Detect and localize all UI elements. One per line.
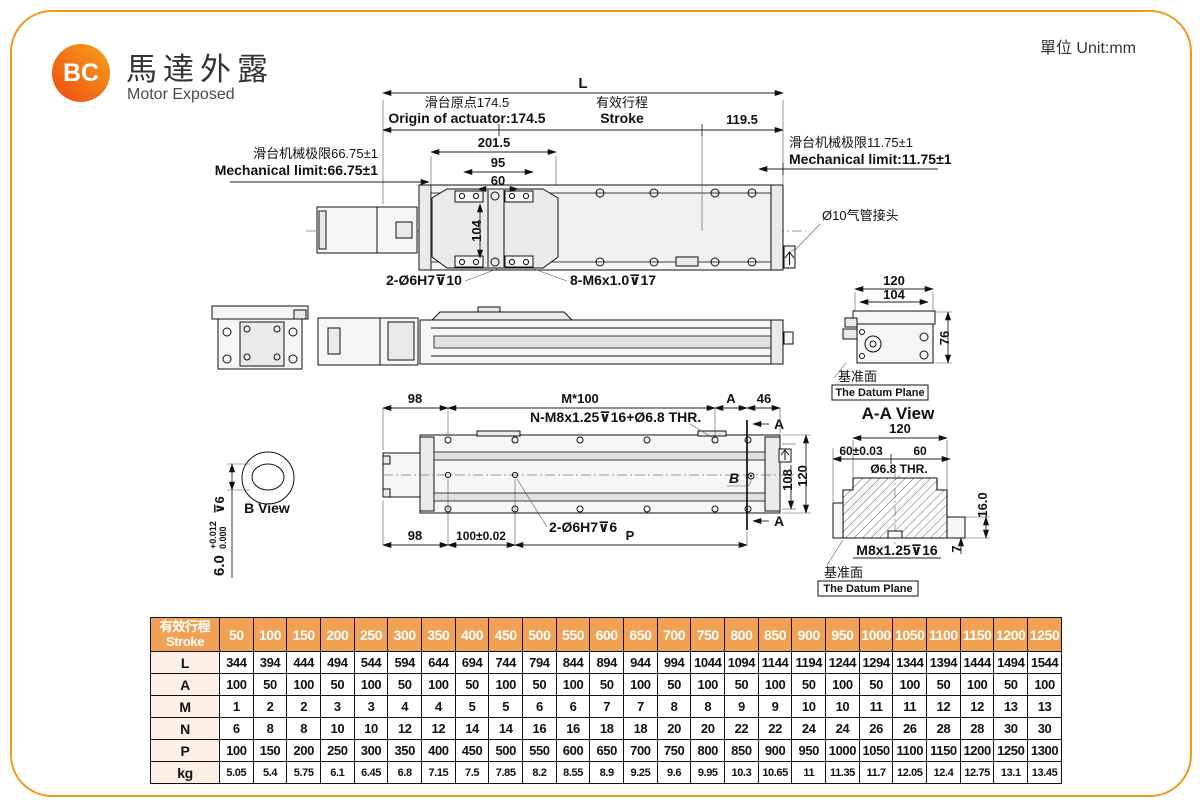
table-cell: 7.5 [455, 762, 489, 784]
stroke-table-head: 有效行程 Stroke 5010015020025030035040045050… [151, 618, 1062, 652]
table-cell: 344 [220, 652, 254, 674]
table-cell: 100 [758, 674, 792, 696]
stroke-col-header: 850 [758, 618, 792, 652]
table-cell: 18 [590, 718, 624, 740]
table-cell: 944 [624, 652, 658, 674]
table-cell: 6 [220, 718, 254, 740]
table-cell: 300 [354, 740, 388, 762]
thread-hole-label: 8-M6x1.0⊽17 [570, 272, 656, 288]
aa-dim-16: 16.0 [975, 492, 990, 517]
stroke-col-header: 450 [489, 618, 523, 652]
table-cell: 1344 [893, 652, 927, 674]
stroke-col-header: 900 [792, 618, 826, 652]
table-cell: 20 [657, 718, 691, 740]
table-cell: 12.4 [927, 762, 961, 784]
b-view: B View 6.0 +0.012 0.000 ⊽6 [208, 452, 294, 578]
air-fitting-label: Ø10气管接头 [822, 208, 899, 223]
origin-label-en: Origin of actuator:174.5 [388, 110, 545, 126]
table-cell: 11 [792, 762, 826, 784]
table-cell: 9.95 [691, 762, 725, 784]
table-cell: 1094 [725, 652, 759, 674]
aa-dim-60-tol: 60±0.03 [839, 444, 883, 458]
table-cell: 12 [388, 718, 422, 740]
table-cell: 1300 [1028, 740, 1062, 762]
dim-98-bottom: 98 [408, 528, 422, 543]
cs-datum-zh: 基准面 [838, 369, 877, 384]
mech-limit-left-zh: 滑台机械极限66.75±1 [253, 146, 378, 161]
table-cell: 8.55 [556, 762, 590, 784]
plan-pin-label: 2-Ø6H7⊽6 [549, 519, 617, 535]
table-cell: 30 [1028, 718, 1062, 740]
table-cell: 11 [893, 696, 927, 718]
table-cell: 694 [455, 652, 489, 674]
table-cell: 1100 [893, 740, 927, 762]
stroke-header-cell: 有效行程 Stroke [151, 618, 220, 652]
mech-limit-left-en: Mechanical limit:66.75±1 [215, 162, 379, 178]
dim-98-top: 98 [408, 391, 422, 406]
stroke-col-header: 750 [691, 618, 725, 652]
table-row-L: L344394444494544594644694744794844894944… [151, 652, 1062, 674]
table-cell: 350 [388, 740, 422, 762]
table-cell: 20 [691, 718, 725, 740]
table-cell: 9.25 [624, 762, 658, 784]
table-cell: 5 [489, 696, 523, 718]
table-cell: 11 [859, 696, 893, 718]
table-cell: 24 [792, 718, 826, 740]
stroke-col-header: 550 [556, 618, 590, 652]
table-cell: 8.2 [523, 762, 557, 784]
table-cell: 50 [590, 674, 624, 696]
cs-dim-104: 104 [883, 287, 905, 302]
table-cell: 8 [657, 696, 691, 718]
table-cell: 700 [624, 740, 658, 762]
table-cell: 22 [758, 718, 792, 740]
table-row-A: A100501005010050100501005010050100501005… [151, 674, 1062, 696]
table-cell: 26 [859, 718, 893, 740]
table-cell: 5.4 [253, 762, 287, 784]
table-cell: 30 [994, 718, 1028, 740]
table-cell: 8 [253, 718, 287, 740]
table-cell: 14 [489, 718, 523, 740]
table-cell: 12.05 [893, 762, 927, 784]
table-cell: 7.15 [422, 762, 456, 784]
aa-dim-60: 60 [913, 444, 927, 458]
aa-dim-120: 120 [889, 421, 911, 436]
table-cell: 450 [455, 740, 489, 762]
table-cell: 844 [556, 652, 590, 674]
table-row-N: N688101012121414161618182020222224242626… [151, 718, 1062, 740]
stroke-col-header: 1150 [960, 618, 994, 652]
mech-limit-right-zh: 滑台机械极限11.75±1 [789, 135, 913, 150]
table-cell: 100 [556, 674, 590, 696]
b-dim-depth: ⊽6 [212, 496, 227, 514]
table-cell: 6 [556, 696, 590, 718]
table-cell: 1050 [859, 740, 893, 762]
table-cell: 9.6 [657, 762, 691, 784]
table-cell: 12 [927, 696, 961, 718]
table-cell: 600 [556, 740, 590, 762]
table-cell: 50 [927, 674, 961, 696]
table-row-M: M122334455667788991010111112121313 [151, 696, 1062, 718]
cs-dim-76: 76 [937, 331, 952, 345]
dim-P: P [626, 528, 635, 543]
row-label-kg: kg [151, 762, 220, 784]
table-cell: 10 [826, 696, 860, 718]
stroke-col-header: 50 [220, 618, 254, 652]
stroke-col-header: 500 [523, 618, 557, 652]
table-row-P: P100150200250300350400450500550600650700… [151, 740, 1062, 762]
stroke-label-zh: 有效行程 [596, 95, 648, 110]
table-cell: 500 [489, 740, 523, 762]
table-cell: 1250 [994, 740, 1028, 762]
row-label-P: P [151, 740, 220, 762]
plan-thread-label: N-M8x1.25⊽16+Ø6.8 THR. [530, 409, 701, 425]
table-cell: 2 [287, 696, 321, 718]
table-cell: 13.1 [994, 762, 1028, 784]
dim-100: 100±0.02 [456, 529, 506, 543]
table-cell: 22 [725, 718, 759, 740]
table-cell: 50 [859, 674, 893, 696]
table-cell: 16 [523, 718, 557, 740]
stroke-label-en: Stroke [600, 110, 644, 126]
stroke-header-en: Stroke [151, 635, 219, 649]
stroke-col-header: 400 [455, 618, 489, 652]
table-cell: 1150 [927, 740, 961, 762]
stroke-col-header: 700 [657, 618, 691, 652]
table-cell: 850 [725, 740, 759, 762]
stroke-col-header: 1050 [893, 618, 927, 652]
table-cell: 50 [994, 674, 1028, 696]
aa-datum-zh: 基准面 [824, 565, 863, 580]
table-cell: 100 [960, 674, 994, 696]
table-cell: 900 [758, 740, 792, 762]
table-cell: 50 [523, 674, 557, 696]
aa-datum-en: The Datum Plane [823, 583, 912, 595]
table-cell: 50 [253, 674, 287, 696]
table-cell: 4 [388, 696, 422, 718]
table-cell: 16 [556, 718, 590, 740]
dim-104: 104 [469, 219, 484, 241]
table-cell: 400 [422, 740, 456, 762]
table-cell: 3 [354, 696, 388, 718]
table-cell: 28 [927, 718, 961, 740]
table-cell: 100 [489, 674, 523, 696]
b-view-label: B View [244, 500, 290, 516]
table-cell: 744 [489, 652, 523, 674]
table-cell: 14 [455, 718, 489, 740]
stroke-col-header: 350 [422, 618, 456, 652]
table-cell: 100 [893, 674, 927, 696]
section-marker-top: A [774, 416, 784, 432]
table-cell: 6.1 [321, 762, 355, 784]
table-cell: 9 [725, 696, 759, 718]
table-cell: 994 [657, 652, 691, 674]
aa-view: A-A View 120 60±0.03 60 Ø6.8 THR. 16.0 7… [818, 404, 990, 596]
table-cell: 2 [253, 696, 287, 718]
stroke-col-header: 600 [590, 618, 624, 652]
row-label-M: M [151, 696, 220, 718]
table-cell: 7.85 [489, 762, 523, 784]
table-cell: 100 [354, 674, 388, 696]
side-view [318, 307, 793, 365]
aa-thread-label: M8x1.25⊽16 [856, 542, 938, 558]
table-cell: 550 [523, 740, 557, 762]
stroke-col-header: 1250 [1028, 618, 1062, 652]
stroke-col-header: 200 [321, 618, 355, 652]
row-label-L: L [151, 652, 220, 674]
table-cell: 444 [287, 652, 321, 674]
table-cell: 26 [893, 718, 927, 740]
table-cell: 50 [792, 674, 826, 696]
table-cell: 1244 [826, 652, 860, 674]
table-cell: 494 [321, 652, 355, 674]
cross-section-view: 120 104 76 基准面 The Datum Plane [832, 273, 952, 400]
top-plan-view: L 滑台原点174.5 Origin of actuator:174.5 有效行… [215, 75, 952, 288]
table-cell: 544 [354, 652, 388, 674]
table-cell: 10 [792, 696, 826, 718]
table-cell: 6.45 [354, 762, 388, 784]
stroke-table-wrap: 有效行程 Stroke 5010015020025030035040045050… [150, 617, 1062, 784]
table-cell: 794 [523, 652, 557, 674]
cs-datum-en: The Datum Plane [835, 387, 924, 399]
table-cell: 10.3 [725, 762, 759, 784]
dim-A: A [726, 391, 736, 406]
table-cell: 13 [1028, 696, 1062, 718]
table-cell: 100 [1028, 674, 1062, 696]
table-cell: 11.7 [859, 762, 893, 784]
stroke-col-header: 150 [287, 618, 321, 652]
table-cell: 6 [523, 696, 557, 718]
table-cell: 50 [657, 674, 691, 696]
dim-108: 108 [780, 469, 795, 491]
stroke-table-body: L344394444494544594644694744794844894944… [151, 652, 1062, 784]
stroke-col-header: 1000 [859, 618, 893, 652]
table-cell: 100 [624, 674, 658, 696]
table-cell: 650 [590, 740, 624, 762]
b-dim-tol-lower: 0.000 [218, 526, 228, 549]
table-cell: 9 [758, 696, 792, 718]
table-cell: 10 [354, 718, 388, 740]
dim-46: 46 [757, 391, 771, 406]
table-cell: 100 [691, 674, 725, 696]
stroke-col-header: 250 [354, 618, 388, 652]
stroke-table: 有效行程 Stroke 5010015020025030035040045050… [150, 617, 1062, 784]
stroke-col-header: 1100 [927, 618, 961, 652]
table-cell: 11.35 [826, 762, 860, 784]
row-label-A: A [151, 674, 220, 696]
stroke-col-header: 300 [388, 618, 422, 652]
table-cell: 1394 [927, 652, 961, 674]
cs-dim-120: 120 [883, 273, 905, 288]
table-cell: 1444 [960, 652, 994, 674]
table-cell: 50 [321, 674, 355, 696]
end-view [212, 306, 308, 369]
table-cell: 3 [321, 696, 355, 718]
stroke-header-row: 有效行程 Stroke 5010015020025030035040045050… [151, 618, 1062, 652]
table-cell: 10 [321, 718, 355, 740]
table-cell: 150 [253, 740, 287, 762]
section-marker-bottom: A [774, 513, 784, 529]
table-cell: 12 [422, 718, 456, 740]
mech-limit-right-en: Mechanical limit:11.75±1 [789, 151, 952, 167]
dim-119-5: 119.5 [726, 112, 758, 127]
table-cell: 750 [657, 740, 691, 762]
table-cell: 894 [590, 652, 624, 674]
stroke-col-header: 1200 [994, 618, 1028, 652]
table-cell: 5.05 [220, 762, 254, 784]
table-row-kg: kg5.055.45.756.16.456.87.157.57.858.28.5… [151, 762, 1062, 784]
table-cell: 50 [388, 674, 422, 696]
stroke-col-header: 650 [624, 618, 658, 652]
table-cell: 394 [253, 652, 287, 674]
table-cell: 7 [624, 696, 658, 718]
table-cell: 950 [792, 740, 826, 762]
pin-hole-label: 2-Ø6H7⊽10 [386, 272, 462, 288]
table-cell: 6.8 [388, 762, 422, 784]
table-cell: 644 [422, 652, 456, 674]
table-cell: 5.75 [287, 762, 321, 784]
table-cell: 13.45 [1028, 762, 1062, 784]
aa-dim-7: 7 [949, 545, 964, 552]
dim-120-plan: 120 [795, 465, 810, 487]
stroke-col-header: 800 [725, 618, 759, 652]
table-cell: 12 [960, 696, 994, 718]
b-marker: B [729, 470, 739, 486]
dim-201-5: 201.5 [478, 135, 511, 150]
table-cell: 10.65 [758, 762, 792, 784]
table-cell: 7 [590, 696, 624, 718]
dim-95: 95 [491, 155, 505, 170]
bottom-plan-view: A A 98 M*100 A 46 N-M8x1.25⊽16+Ø6.8 THR.… [383, 391, 811, 545]
table-cell: 100 [422, 674, 456, 696]
dim-m100: M*100 [561, 391, 599, 406]
table-cell: 8 [287, 718, 321, 740]
dim-60: 60 [491, 173, 505, 188]
table-cell: 1144 [758, 652, 792, 674]
table-cell: 24 [826, 718, 860, 740]
aa-thru-label: Ø6.8 THR. [870, 462, 927, 476]
b-dim-tol-upper: +0.012 [208, 521, 218, 549]
table-cell: 50 [725, 674, 759, 696]
table-cell: 13 [994, 696, 1028, 718]
table-cell: 8.9 [590, 762, 624, 784]
table-cell: 4 [422, 696, 456, 718]
table-cell: 200 [287, 740, 321, 762]
table-cell: 28 [960, 718, 994, 740]
table-cell: 12.75 [960, 762, 994, 784]
table-cell: 100 [220, 674, 254, 696]
table-cell: 1294 [859, 652, 893, 674]
table-cell: 100 [826, 674, 860, 696]
table-cell: 1494 [994, 652, 1028, 674]
table-cell: 5 [455, 696, 489, 718]
table-cell: 50 [455, 674, 489, 696]
stroke-col-header: 950 [826, 618, 860, 652]
stroke-col-header: 100 [253, 618, 287, 652]
table-cell: 1044 [691, 652, 725, 674]
table-cell: 1544 [1028, 652, 1062, 674]
table-cell: 100 [287, 674, 321, 696]
table-cell: 1000 [826, 740, 860, 762]
table-cell: 594 [388, 652, 422, 674]
table-cell: 1200 [960, 740, 994, 762]
table-cell: 800 [691, 740, 725, 762]
table-cell: 1194 [792, 652, 826, 674]
table-cell: 250 [321, 740, 355, 762]
origin-label-zh: 滑台原点174.5 [425, 95, 510, 110]
b-dim-main: 6.0 [211, 555, 228, 576]
stroke-header-zh: 有效行程 [151, 620, 219, 634]
dim-L: L [578, 75, 587, 92]
row-label-N: N [151, 718, 220, 740]
table-cell: 8 [691, 696, 725, 718]
table-cell: 1 [220, 696, 254, 718]
table-cell: 100 [220, 740, 254, 762]
table-cell: 18 [624, 718, 658, 740]
